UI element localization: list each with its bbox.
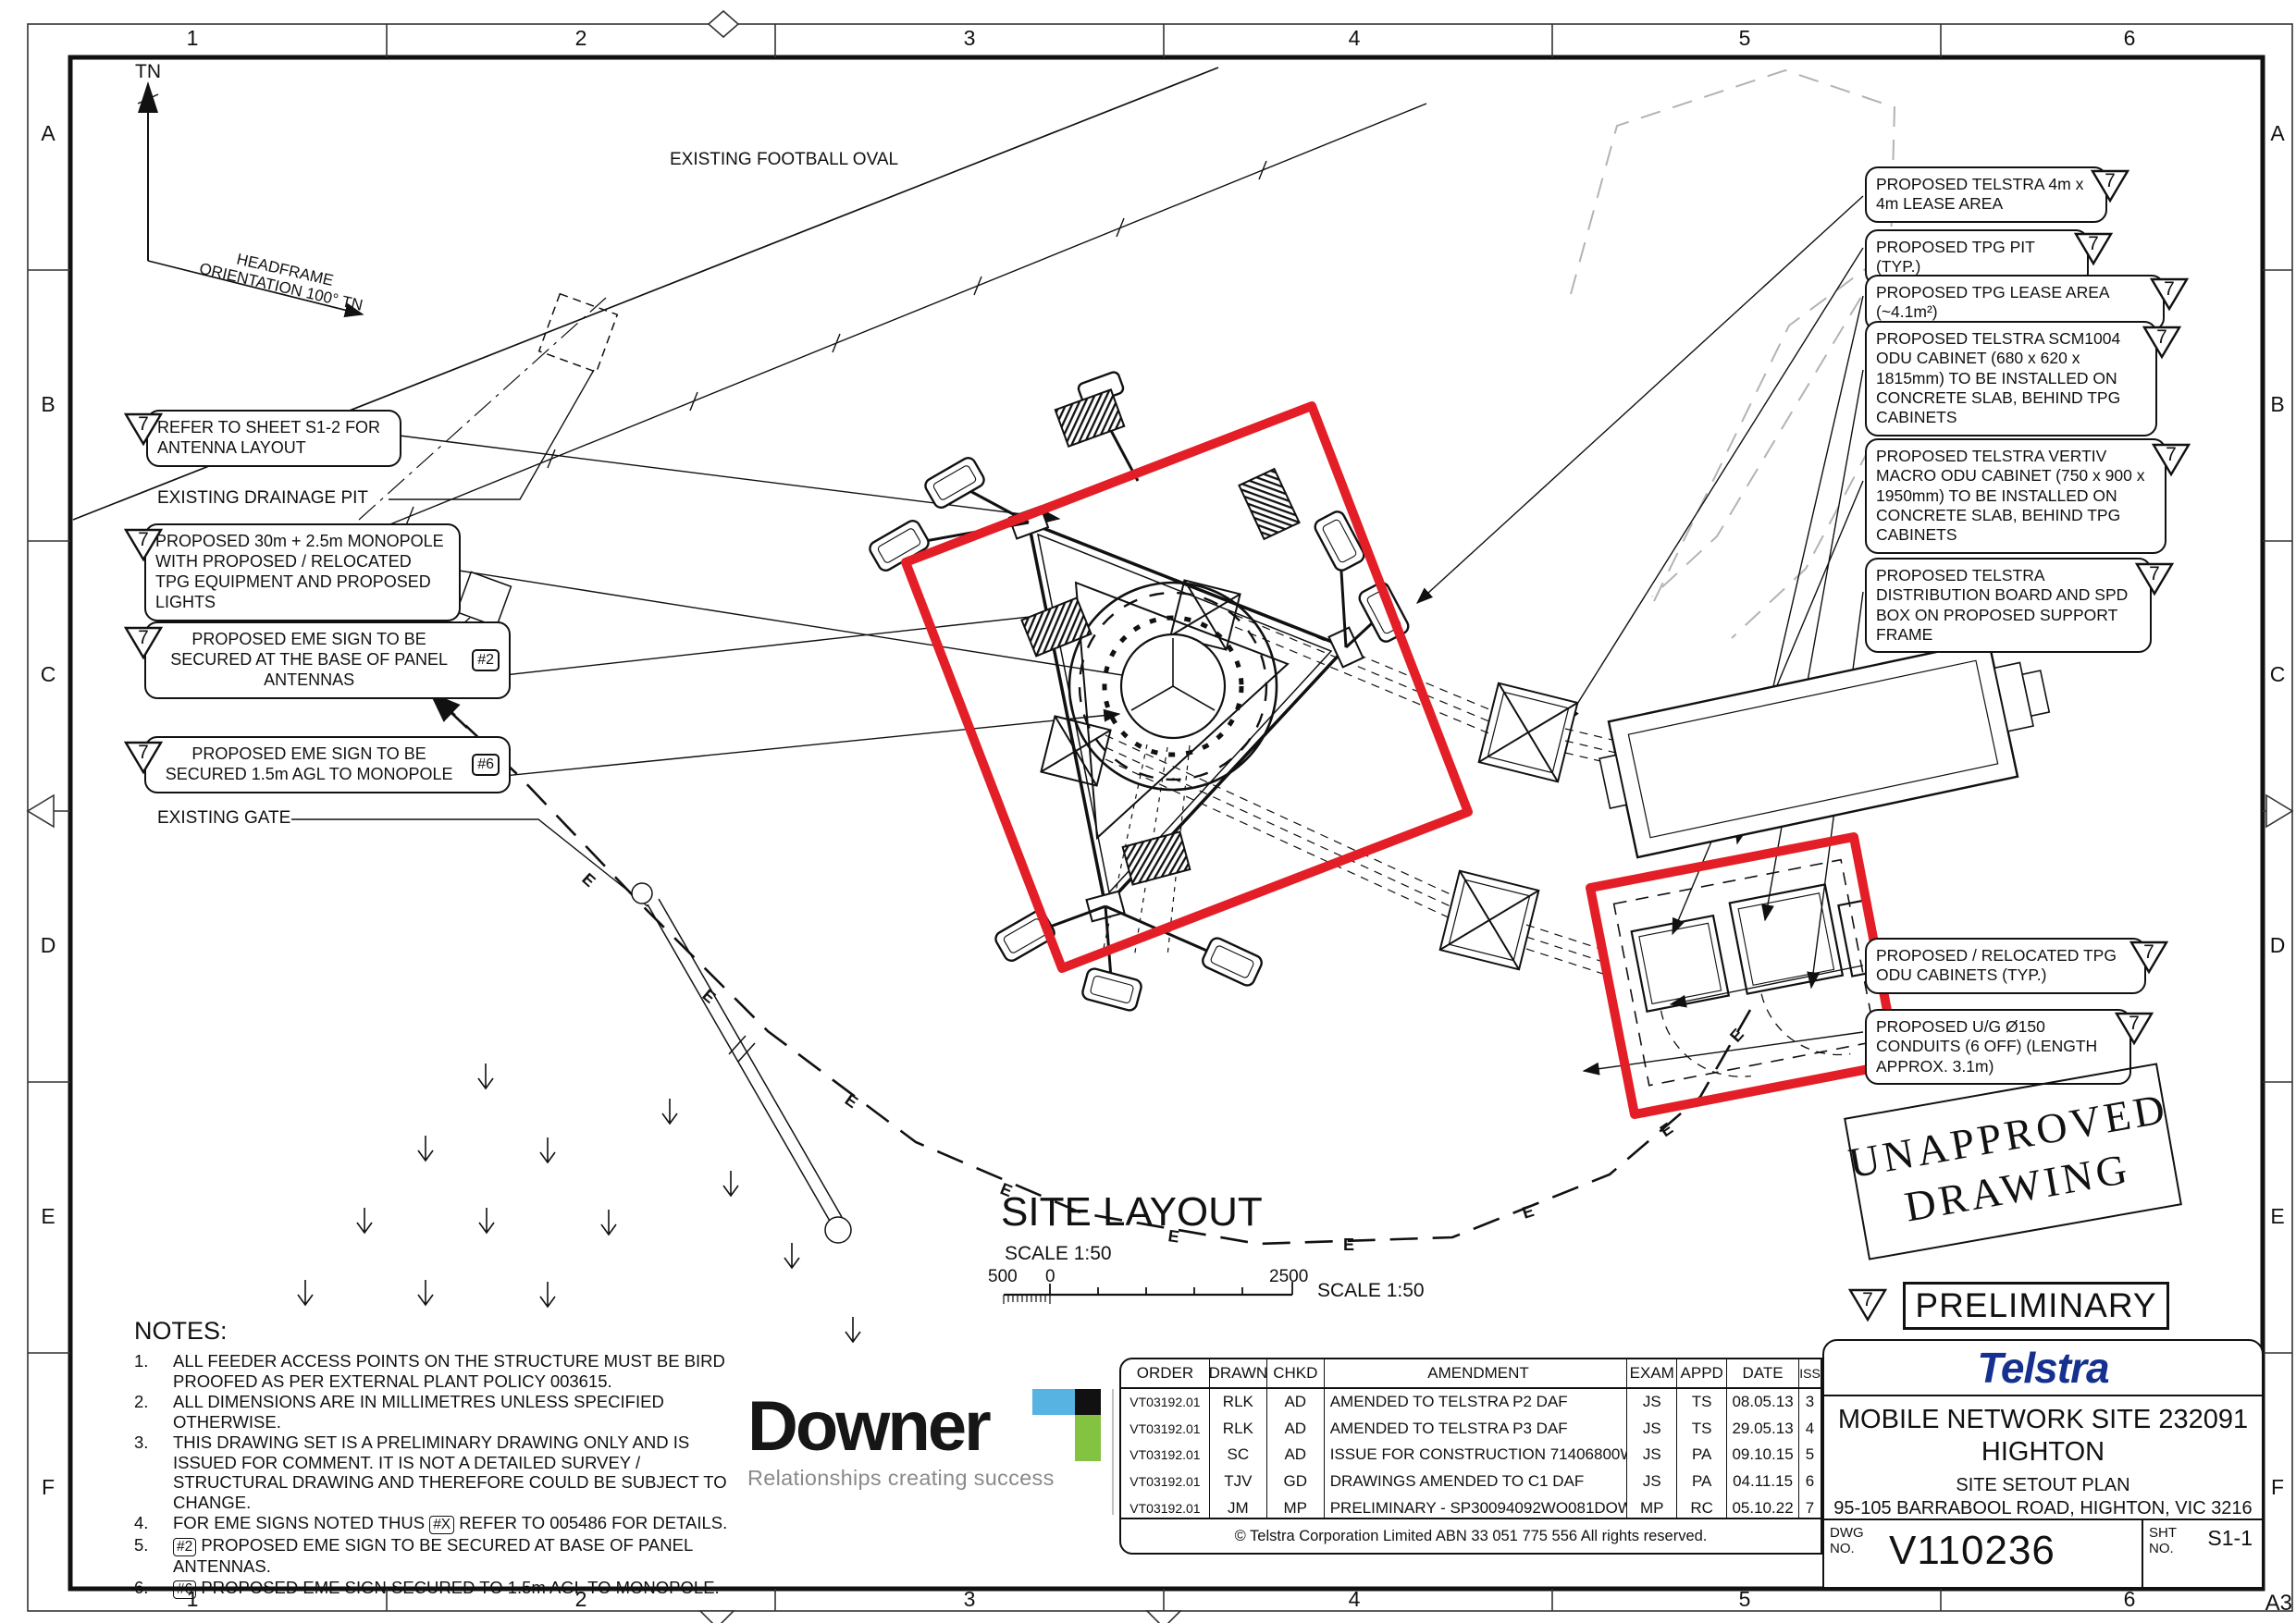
drainage-channel: [632, 883, 851, 1243]
revision-cell: 09.10.15: [1727, 1442, 1799, 1469]
svg-text:7: 7: [138, 742, 149, 763]
grid-reference-label: 1: [174, 26, 211, 51]
revision-rows: VT03192.01RLKADAMENDED TO TELSTRA P2 DAF…: [1121, 1389, 1821, 1521]
revision-cell: DRAWINGS AMENDED TO C1 DAF: [1325, 1469, 1628, 1495]
revision-cell: VT03192.01: [1121, 1389, 1210, 1416]
callout-eme-sign-2: PROPOSED EME SIGN TO BE SECURED AT THE B…: [144, 621, 511, 699]
grid-reference-label: E: [2259, 1204, 2296, 1229]
revision-row: VT03192.01TJVGDDRAWINGS AMENDED TO C1 DA…: [1121, 1469, 1821, 1495]
svg-text:7: 7: [2149, 563, 2160, 584]
revision-cell: 04.11.15: [1727, 1469, 1799, 1495]
grid-reference-label: D: [30, 933, 67, 958]
note-item: 5.#2 PROPOSED EME SIGN TO BE SECURED AT …: [134, 1535, 740, 1577]
callout-tpg-odu: PROPOSED / RELOCATED TPG ODU CABINETS (T…: [1865, 938, 2146, 994]
revision-cell: JS: [1627, 1389, 1677, 1416]
drainage-pit-label: EXISTING DRAINAGE PIT: [157, 488, 368, 509]
revision-cell: GD: [1267, 1469, 1325, 1495]
grid-reference-label: C: [30, 662, 67, 687]
callout-antenna-layout: REFER TO SHEET S1-2 FOR ANTENNA LAYOUT: [146, 410, 401, 467]
downer-mark-blue: [1032, 1389, 1075, 1415]
revision-cell: 6: [1799, 1469, 1821, 1495]
sht-cell: SHTNO. S1-1: [2143, 1520, 2262, 1587]
note-item: 6.#6 PROPOSED EME SIGN SECURED TO 1.5m A…: [134, 1578, 740, 1599]
revision-cell: JS: [1627, 1469, 1677, 1495]
grid-reference-label: A: [2259, 121, 2296, 146]
revision-row: VT03192.01SCADISSUE FOR CONSTRUCTION 714…: [1121, 1442, 1821, 1469]
grid-reference-label: B: [30, 392, 67, 417]
svg-text:7: 7: [2129, 1013, 2140, 1034]
ground-arrows: [298, 1064, 860, 1342]
revision-7-marker: 7: [2129, 940, 2168, 979]
svg-text:E: E: [842, 1090, 861, 1112]
grid-reference-label: F: [30, 1475, 67, 1500]
dwg-cell: DWGNO. V110236: [1824, 1520, 2143, 1587]
callout-distribution-board: PROPOSED TELSTRA DISTRIBUTION BOARD AND …: [1865, 558, 2152, 653]
revision-cell: RLK: [1210, 1389, 1267, 1416]
scalebar-2500: 2500: [1269, 1267, 1308, 1287]
revision-7-marker: 7: [2135, 561, 2174, 601]
grid-reference-label: 4: [1336, 26, 1373, 51]
revision-7-marker: 7: [124, 625, 163, 665]
svg-text:E: E: [1726, 1025, 1747, 1045]
svg-text:E: E: [578, 869, 599, 891]
scalebar-note: SCALE 1:50: [1317, 1280, 1425, 1302]
grid-reference-label: 3: [951, 26, 988, 51]
svg-text:7: 7: [2088, 233, 2099, 254]
revision-7-marker: 7: [2074, 231, 2113, 271]
revision-7-marker: 7: [2150, 277, 2189, 316]
revision-cell: TJV: [1210, 1469, 1267, 1495]
revision-cell: JS: [1627, 1416, 1677, 1443]
svg-text:7: 7: [2164, 278, 2175, 300]
copyright-bar: © Telstra Corporation Limited ABN 33 051…: [1119, 1518, 1822, 1555]
svg-text:E: E: [1343, 1236, 1354, 1254]
grid-reference-label: 6: [2111, 1587, 2148, 1612]
revision-table-header: ORDER DRAWN CHKD AMENDMENT EXAM APPD DAT…: [1121, 1359, 1821, 1389]
revision-cell: AD: [1267, 1389, 1325, 1416]
revision-row: VT03192.01RLKADAMENDED TO TELSTRA P3 DAF…: [1121, 1416, 1821, 1443]
grid-reference-label: A: [30, 121, 67, 146]
revision-cell: AD: [1267, 1442, 1325, 1469]
dwg-number: V110236: [1889, 1528, 2055, 1574]
revision-7-marker: 7: [124, 740, 163, 780]
revision-cell: VT03192.01: [1121, 1442, 1210, 1469]
downer-divider: [1112, 1389, 1114, 1515]
notes-block: NOTES: 1.ALL FEEDER ACCESS POINTS ON THE…: [134, 1317, 740, 1600]
tpg-lease-area: [1590, 837, 1897, 1114]
revision-cell: VT03192.01: [1121, 1469, 1210, 1495]
existing-gate-label: EXISTING GATE: [157, 808, 290, 829]
note-item: 4.FOR EME SIGNS NOTED THUS #X REFER TO 0…: [134, 1513, 740, 1534]
title-block-numbers: DWGNO. V110236 SHTNO. S1-1: [1822, 1520, 2264, 1589]
revision-cell: 5: [1799, 1442, 1821, 1469]
revision-cell: 4: [1799, 1416, 1821, 1443]
downer-mark-green: [1075, 1415, 1101, 1461]
downer-wordmark: Downer: [747, 1392, 1055, 1462]
plan-type: SITE SETOUT PLAN: [1824, 1475, 2262, 1496]
title-block-site: MOBILE NETWORK SITE 232091 HIGHTON SITE …: [1822, 1396, 2264, 1520]
view-title: SITE LAYOUT: [1001, 1189, 1263, 1236]
svg-text:E: E: [698, 986, 719, 1007]
grid-reference-label: E: [30, 1204, 67, 1229]
revision-7-marker: 7: [2152, 442, 2191, 482]
telstra-wordmark: Telstra: [1977, 1343, 2108, 1393]
true-north-label: TN: [135, 61, 161, 83]
svg-text:E: E: [1657, 1119, 1676, 1140]
preliminary-stamp: PRELIMINARY: [1903, 1282, 2169, 1330]
title-block: Telstra MOBILE NETWORK SITE 232091 HIGHT…: [1822, 1339, 2264, 1589]
svg-text:7: 7: [138, 529, 149, 550]
downer-mark-black: [1075, 1389, 1101, 1415]
grid-reference-label: 6: [2111, 26, 2148, 51]
svg-text:7: 7: [2105, 170, 2116, 191]
downer-tagline: Relationships creating success: [747, 1466, 1055, 1491]
svg-text:7: 7: [1862, 1289, 1873, 1310]
telstra-logo: Telstra: [1822, 1339, 2264, 1396]
svg-text:7: 7: [2156, 326, 2167, 348]
revision-cell: PA: [1677, 1442, 1727, 1469]
callout-monopole: PROPOSED 30m + 2.5m MONOPOLE WITH PROPOS…: [144, 523, 461, 621]
revision-cell: TS: [1677, 1416, 1727, 1443]
revision-cell: ISSUE FOR CONSTRUCTION 71406800WO03AA: [1325, 1442, 1628, 1469]
note-item: 2.ALL DIMENSIONS ARE IN MILLIMETRES UNLE…: [134, 1392, 740, 1432]
revision-cell: RLK: [1210, 1416, 1267, 1443]
sheet-number: S1-1: [2207, 1526, 2253, 1551]
revision-cell: JS: [1627, 1442, 1677, 1469]
revision-row: VT03192.01RLKADAMENDED TO TELSTRA P2 DAF…: [1121, 1389, 1821, 1416]
revision-cell: SC: [1210, 1442, 1267, 1469]
downer-logo: Downer Relationships creating success: [747, 1392, 1055, 1491]
sheet-size-label: A3: [2239, 1591, 2292, 1617]
revision-7-marker: 7: [124, 412, 163, 451]
svg-text:7: 7: [138, 413, 149, 435]
grid-reference-label: 4: [1336, 1587, 1373, 1612]
eme-tag-2: #2: [173, 1538, 196, 1556]
revision-7-marker: 7: [2115, 1011, 2154, 1051]
revision-cell: AD: [1267, 1416, 1325, 1443]
revision-cell: 29.05.13: [1727, 1416, 1799, 1443]
eme-tag-6: #6: [472, 754, 500, 776]
grid-reference-label: 3: [951, 1587, 988, 1612]
note-item: 3.THIS DRAWING SET IS A PRELIMINARY DRAW…: [134, 1432, 740, 1512]
callout-scm1004: PROPOSED TELSTRA SCM1004 ODU CABINET (68…: [1865, 321, 2157, 436]
svg-text:7: 7: [138, 627, 149, 648]
callout-eme-sign-6: PROPOSED EME SIGN TO BE SECURED 1.5m AGL…: [144, 736, 511, 793]
site-number: MOBILE NETWORK SITE 232091: [1824, 1405, 2262, 1435]
view-scale: SCALE 1:50: [1005, 1243, 1112, 1265]
scalebar-500: 500: [988, 1267, 1018, 1287]
grid-reference-label: D: [2259, 933, 2296, 958]
revision-cell: 08.05.13: [1727, 1389, 1799, 1416]
site-locality: HIGHTON: [1824, 1437, 2262, 1468]
svg-text:7: 7: [2166, 444, 2177, 465]
revision-cell: PA: [1677, 1469, 1727, 1495]
drawing-sheet: E E E E E E E E E E: [0, 0, 2296, 1623]
revision-table: ORDER DRAWN CHKD AMENDMENT EXAM APPD DAT…: [1119, 1358, 1822, 1519]
boundary-lines: [73, 68, 1426, 547]
scalebar-0: 0: [1045, 1267, 1055, 1287]
equipment-shelter: [1592, 632, 2061, 861]
callout-vertiv: PROPOSED TELSTRA VERTIV MACRO ODU CABINE…: [1865, 438, 2166, 554]
grid-reference-label: F: [2259, 1475, 2296, 1500]
revision-7-marker: 7: [2142, 325, 2181, 364]
grid-reference-label: B: [2259, 392, 2296, 417]
grid-reference-label: 5: [1726, 1587, 1763, 1612]
revision-cell: AMENDED TO TELSTRA P3 DAF: [1325, 1416, 1628, 1443]
grid-reference-label: 5: [1726, 26, 1763, 51]
revision-7-marker: 7: [1848, 1287, 1887, 1327]
revision-cell: TS: [1677, 1389, 1727, 1416]
revision-cell: 3: [1799, 1389, 1821, 1416]
notes-title: NOTES:: [134, 1317, 740, 1346]
grid-reference-label: 2: [562, 26, 599, 51]
revision-7-marker: 7: [2091, 168, 2129, 208]
eme-tag-x: #X: [429, 1516, 454, 1534]
svg-text:7: 7: [2143, 941, 2154, 963]
revision-cell: AMENDED TO TELSTRA P2 DAF: [1325, 1389, 1628, 1416]
callout-telstra-lease: PROPOSED TELSTRA 4m x 4m LEASE AREA: [1865, 166, 2107, 223]
eme-tag-2: #2: [472, 649, 500, 671]
grid-reference-label: C: [2259, 662, 2296, 687]
revision-cell: VT03192.01: [1121, 1416, 1210, 1443]
site-address: 95-105 BARRABOOL ROAD, HIGHTON, VIC 3216: [1824, 1498, 2262, 1519]
monopole-headframe: [868, 371, 1468, 1012]
eme-tag-6: #6: [173, 1580, 196, 1599]
note-item: 1.ALL FEEDER ACCESS POINTS ON THE STRUCT…: [134, 1351, 740, 1391]
football-oval-label: EXISTING FOOTBALL OVAL: [670, 150, 898, 170]
revision-7-marker: 7: [124, 527, 163, 567]
